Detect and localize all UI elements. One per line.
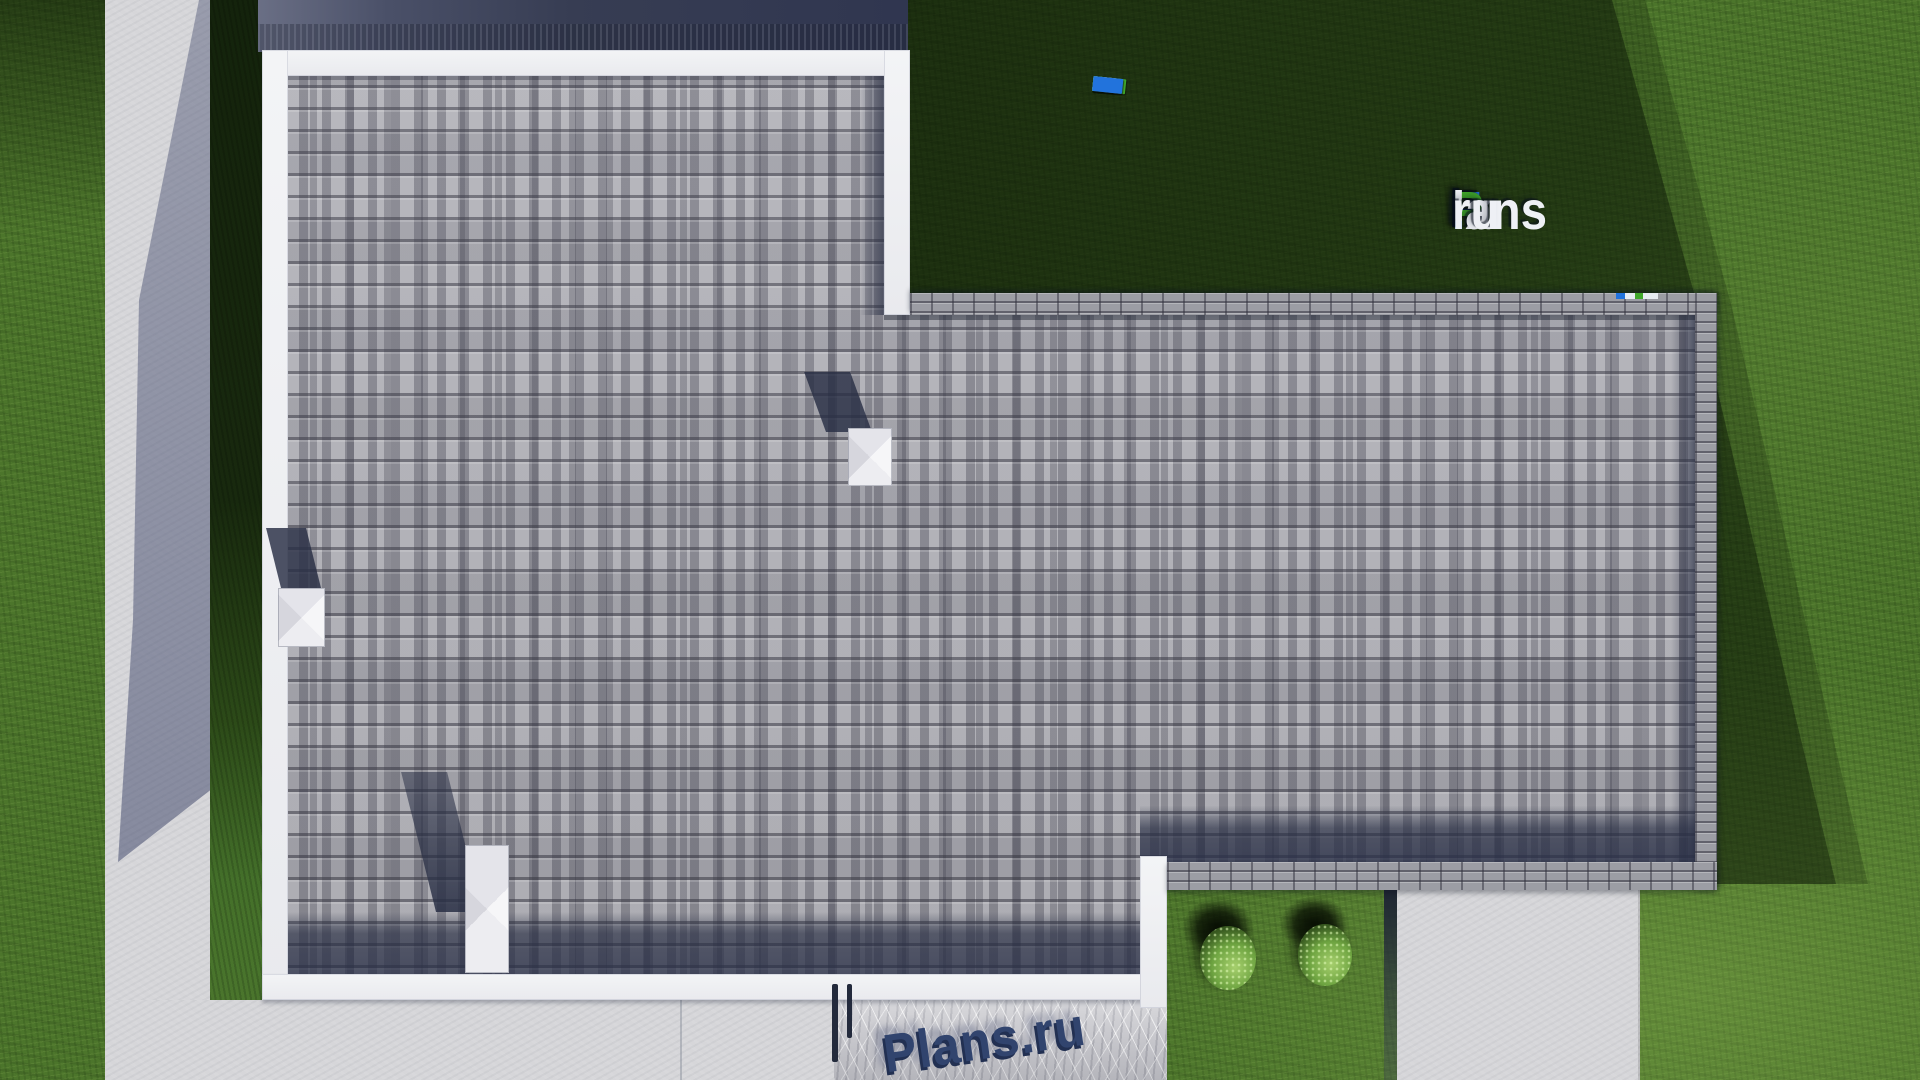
house-north-shadow-band bbox=[258, 0, 908, 52]
roof-ridge-line-left bbox=[288, 76, 884, 80]
roof-ridge-line-right bbox=[884, 315, 1695, 320]
parapet-white-left bbox=[262, 50, 288, 1000]
pole-1 bbox=[832, 984, 838, 1062]
roof-top-view-render: FixPlans.ru Plans.ru bbox=[0, 0, 1920, 1080]
driveway bbox=[1397, 890, 1640, 1080]
lawn-strip-beside-house bbox=[210, 0, 262, 1002]
chimney-2 bbox=[278, 588, 325, 647]
pole-2 bbox=[847, 984, 852, 1038]
fixplans-micro-watermark bbox=[1616, 293, 1658, 299]
3d-block bbox=[1092, 76, 1123, 94]
parapet-brick-right bbox=[1695, 293, 1717, 890]
roof-parapet-shadow-bottom-left bbox=[288, 912, 1140, 974]
chimney-1 bbox=[848, 428, 892, 486]
roof-parapet-shadow-bottom-right bbox=[1140, 806, 1695, 862]
parapet-white-top bbox=[262, 50, 910, 76]
parapet-white-right-upper bbox=[884, 50, 910, 315]
bush-1 bbox=[1200, 926, 1256, 990]
logo-letters-ru: ru bbox=[1452, 184, 1500, 238]
driveway-joint-shadow bbox=[1384, 890, 1397, 1080]
parapet-brick-bottom bbox=[1167, 862, 1717, 890]
roof-parapet-shadow-upper-right bbox=[860, 76, 884, 315]
chimney-3 bbox=[465, 845, 509, 973]
concrete-seam bbox=[680, 1000, 682, 1080]
parapet-brick-top bbox=[910, 293, 1717, 315]
lawn-shadow-top-left bbox=[0, 0, 112, 230]
roof-parapet-shadow-right bbox=[1671, 315, 1695, 862]
bush-2 bbox=[1298, 924, 1352, 986]
parapet-white-bottom bbox=[262, 974, 1167, 1000]
parapet-white-inner-strip bbox=[1140, 856, 1167, 1008]
